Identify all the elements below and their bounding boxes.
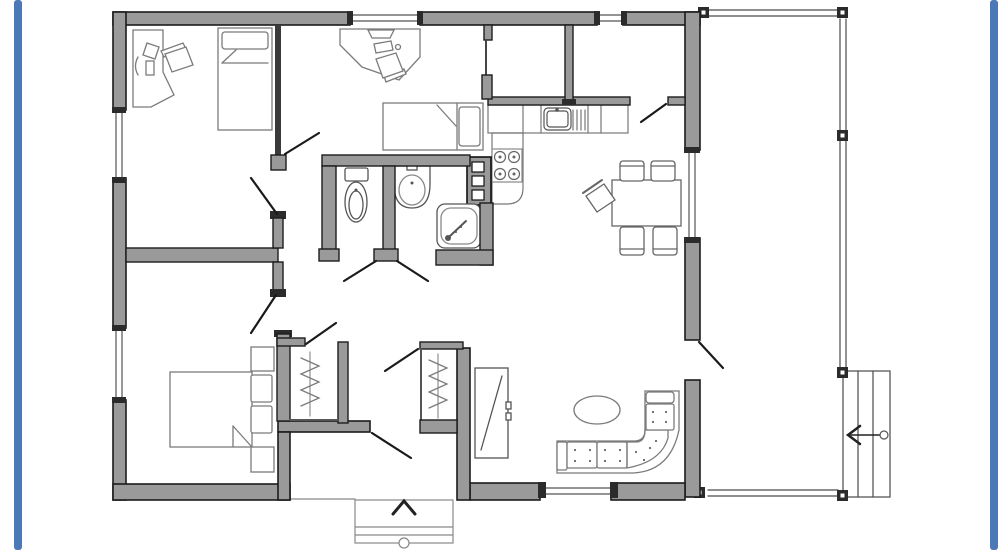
wall-north bbox=[420, 12, 597, 25]
stove-burner-centers bbox=[513, 156, 516, 159]
kitchen-sink-basin bbox=[547, 111, 568, 127]
bath-fixtures bbox=[345, 165, 481, 248]
sofa-buttons bbox=[652, 411, 654, 413]
wall-east bbox=[685, 238, 700, 340]
sofa-buttons bbox=[574, 460, 576, 462]
bed-1-pillow bbox=[222, 32, 268, 49]
wall-east bbox=[685, 12, 700, 150]
sofa-buttons bbox=[589, 449, 591, 451]
window-cap bbox=[347, 11, 353, 25]
stove-burner-centers bbox=[499, 173, 502, 176]
sofa-buttons bbox=[619, 460, 621, 462]
nightstand-bottom bbox=[251, 447, 274, 472]
wall-shower-bottom bbox=[436, 250, 493, 265]
wall-pantry-lower bbox=[482, 75, 492, 99]
entry-arrow-origin bbox=[880, 431, 888, 439]
window-cap bbox=[112, 107, 126, 113]
wall-north bbox=[113, 12, 350, 25]
door-stub-cap bbox=[319, 249, 339, 261]
wall-hall-south bbox=[278, 421, 370, 432]
sofa-cushion bbox=[646, 404, 674, 430]
wall-bathroom-top bbox=[322, 155, 470, 166]
wall-kitchen-stub bbox=[668, 97, 685, 105]
door-stub-cap bbox=[562, 99, 576, 105]
window-cap bbox=[538, 482, 546, 498]
door-stub-cap bbox=[270, 289, 286, 297]
partition-foot bbox=[271, 155, 286, 170]
window-cap bbox=[417, 11, 423, 25]
door-pantry bbox=[641, 104, 666, 122]
stove-burner-centers bbox=[513, 173, 516, 176]
window-cap bbox=[621, 11, 627, 25]
sofa-buttons bbox=[589, 460, 591, 462]
double-bed-pillow bbox=[251, 406, 272, 433]
coffee-table-oval bbox=[574, 396, 620, 424]
sofa-buttons bbox=[604, 460, 606, 462]
door-office bbox=[251, 178, 277, 214]
wall-pantry-right bbox=[565, 25, 573, 100]
door-bathroom bbox=[397, 261, 428, 281]
cabinet-hinge bbox=[506, 402, 511, 409]
sofa-buttons bbox=[574, 449, 576, 451]
wall-stub bbox=[273, 262, 283, 290]
sofa-buttons bbox=[604, 449, 606, 451]
entry-steps bbox=[290, 499, 453, 548]
wall-bathroom-mid bbox=[383, 166, 395, 250]
wash-basin-inner bbox=[399, 175, 425, 205]
wall-stub bbox=[273, 218, 283, 248]
door-stub-cap bbox=[374, 249, 398, 261]
wall-porch-right bbox=[457, 348, 470, 500]
flue-vent bbox=[472, 162, 484, 172]
wall-room-divider bbox=[126, 248, 278, 262]
door-bedroom2 bbox=[285, 133, 319, 154]
sofa-armrest-left bbox=[557, 442, 567, 470]
shower-spray bbox=[460, 226, 462, 228]
terrace-post-core bbox=[841, 371, 845, 375]
double-bed-pillow bbox=[251, 375, 272, 402]
wall-closet-a-top bbox=[277, 338, 305, 346]
door-entry bbox=[372, 433, 411, 458]
sofa-buttons bbox=[649, 447, 651, 449]
study-monitor bbox=[368, 30, 394, 38]
wall-bedroom3-east bbox=[277, 334, 290, 421]
study-mouse bbox=[396, 45, 401, 50]
bed-2-pillow bbox=[459, 107, 480, 146]
shower-spray bbox=[455, 231, 457, 233]
wall-pantry-stub bbox=[484, 25, 492, 40]
door-toilet bbox=[344, 261, 376, 281]
wall-west bbox=[113, 12, 126, 110]
sofa-cushion bbox=[567, 442, 597, 468]
wall-kitchen-top bbox=[488, 97, 630, 105]
sofa-buttons bbox=[665, 411, 667, 413]
window-cap bbox=[112, 177, 126, 183]
window-cap bbox=[112, 325, 126, 331]
door-bedroom3 bbox=[251, 295, 276, 333]
toilet-tank bbox=[345, 168, 368, 181]
dining-table bbox=[612, 180, 681, 226]
sofa-buttons bbox=[665, 421, 667, 423]
floor-plan-image bbox=[0, 0, 1000, 550]
toilet-flush-dot bbox=[355, 189, 358, 192]
toilet-bowl-inner bbox=[349, 191, 363, 219]
terrace-post-core bbox=[841, 134, 845, 138]
door-closet-a bbox=[306, 323, 336, 344]
sofa-buttons bbox=[652, 421, 654, 423]
wall-east bbox=[685, 380, 700, 497]
sofa-cushion bbox=[597, 442, 627, 468]
flue-vent bbox=[472, 176, 484, 186]
flue-vent bbox=[472, 190, 484, 200]
wall-closet-a-right bbox=[338, 342, 348, 423]
basin-drain bbox=[411, 182, 414, 185]
wall-porch-left bbox=[278, 432, 290, 500]
floor-plan-svg bbox=[0, 0, 1000, 550]
terrace-post-core bbox=[841, 11, 845, 15]
window-cap bbox=[684, 147, 700, 153]
sofa-buttons bbox=[635, 451, 637, 453]
partition-bedrooms bbox=[275, 25, 281, 155]
bed-double bbox=[170, 372, 252, 447]
door-closet-b bbox=[385, 349, 418, 371]
terrace-post-core bbox=[702, 11, 706, 15]
entry-path-origin bbox=[399, 538, 409, 548]
window-cap bbox=[610, 482, 618, 498]
sofa-armrest-top bbox=[646, 392, 674, 403]
wall-south bbox=[611, 483, 685, 500]
nightstand-top bbox=[251, 347, 274, 371]
wall-closet-b-bottom bbox=[420, 420, 457, 433]
dining-chair bbox=[653, 227, 677, 255]
cabinet-hinge bbox=[506, 413, 511, 420]
stove-burner-centers bbox=[499, 156, 502, 159]
sofa-buttons bbox=[619, 449, 621, 451]
dining-chair bbox=[620, 161, 644, 181]
terrace-post-core bbox=[841, 494, 845, 498]
office-keyboard bbox=[146, 61, 154, 75]
dining-chair bbox=[620, 227, 644, 255]
door-terrace bbox=[699, 342, 723, 368]
window-cap bbox=[684, 237, 700, 243]
window-cap bbox=[112, 397, 126, 403]
wall-closet-b-top bbox=[420, 342, 463, 349]
dining-chair bbox=[651, 161, 675, 181]
wall-bathroom-left bbox=[322, 166, 336, 250]
kitchen-faucet bbox=[555, 108, 559, 112]
terrace bbox=[694, 7, 890, 501]
sofa-buttons bbox=[643, 459, 645, 461]
entry-steps-outline bbox=[355, 500, 453, 543]
window-cap bbox=[594, 11, 600, 25]
wall-south bbox=[113, 484, 290, 500]
wall-south bbox=[470, 483, 540, 500]
sofa-buttons bbox=[655, 440, 657, 442]
wall-west bbox=[113, 178, 126, 328]
